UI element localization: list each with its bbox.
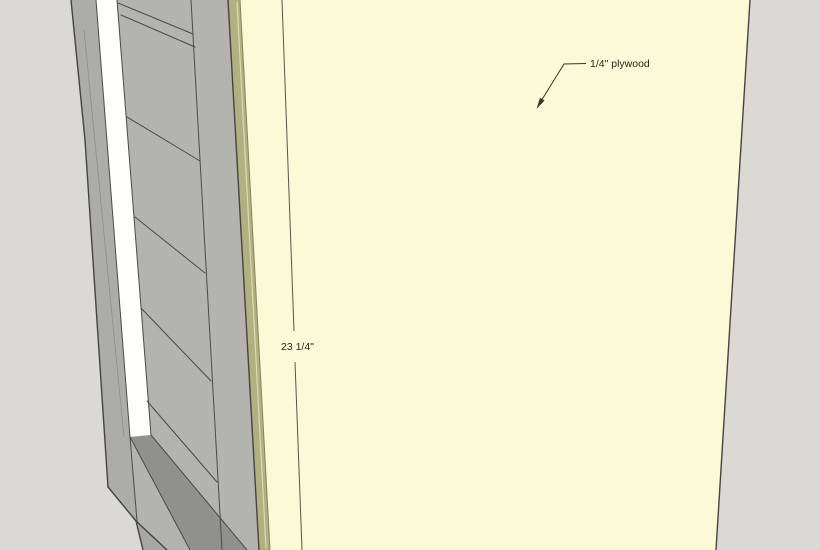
plywood-label: 1/4" plywood <box>590 58 650 70</box>
model-viewport[interactable]: 23 1/4" 1/4" plywood <box>0 0 820 550</box>
dimension-label: 23 1/4" <box>281 341 314 353</box>
plywood-back-panel-face <box>240 0 750 550</box>
